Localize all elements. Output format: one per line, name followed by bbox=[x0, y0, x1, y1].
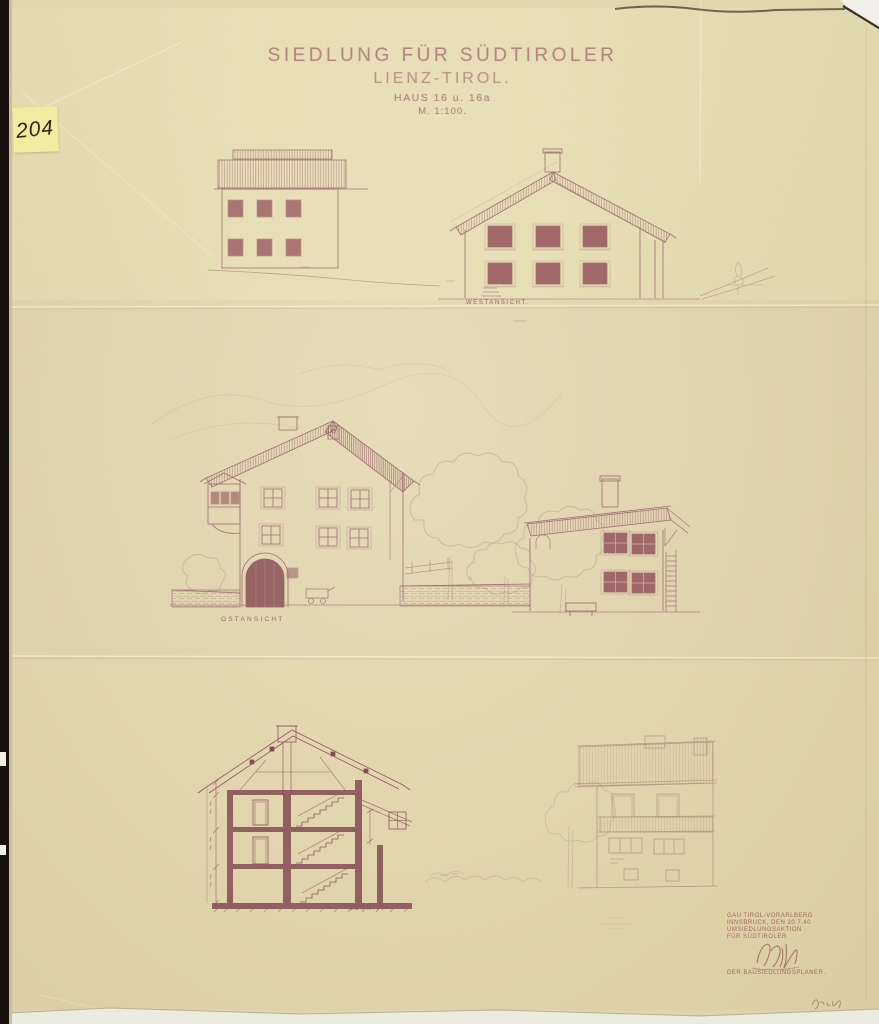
elevation-west bbox=[438, 149, 775, 321]
stamp-signer: DER BAUSIEDLUNGSPLANER. bbox=[727, 970, 826, 977]
title-line-4: M. 1:100. bbox=[255, 106, 630, 117]
stamp-line-2: INNSBRUCK, DEN 20.7.40 bbox=[727, 920, 826, 927]
office-stamp-block: GAU TIROL-VORARLBERG INNSBRUCK, DEN 20.7… bbox=[727, 913, 826, 977]
title-block: SIEDLUNG FÜR SÜDTIROLER LIENZ-TIROL. HAU… bbox=[255, 45, 630, 117]
elevation-balcony bbox=[575, 736, 718, 888]
scanned-architectural-drawing: 204 SIEDLUNG FÜR SÜDTIROLER LIENZ-TIROL.… bbox=[0, 0, 879, 1024]
pencil-mountain-sketch bbox=[150, 363, 562, 440]
elevation-east-secondary bbox=[512, 476, 700, 616]
stamp-line-1: GAU TIROL-VORARLBERG bbox=[727, 913, 826, 920]
scan-left-edge bbox=[0, 0, 9, 1024]
elevation-east-main bbox=[170, 417, 530, 607]
archive-sticky-note: 204 bbox=[12, 106, 59, 153]
scan-edge-notch bbox=[0, 752, 6, 766]
scan-left-gap bbox=[9, 0, 12, 1024]
elevation-small-north bbox=[208, 150, 440, 286]
scan-edge-notch bbox=[0, 845, 6, 855]
paper-creases bbox=[0, 0, 879, 1014]
stamp-line-3: UMSIEDLUNGSAKTION bbox=[727, 927, 826, 934]
ladder bbox=[666, 550, 676, 612]
building-section bbox=[198, 726, 458, 912]
tree-sketches-bottom bbox=[425, 782, 630, 929]
label-ostansicht: OSTANSICHT bbox=[221, 616, 284, 623]
drawing-linework bbox=[0, 0, 879, 1024]
stamp-line-4: FÜR SÜDTIROLER bbox=[727, 934, 826, 941]
title-line-3: HAUS 16 u. 16a bbox=[255, 92, 630, 104]
corner-handwriting bbox=[812, 1000, 840, 1009]
archive-number: 204 bbox=[15, 116, 55, 144]
title-line-2: LIENZ-TIROL. bbox=[255, 70, 630, 88]
scan-edge-artifacts bbox=[9, 0, 879, 1024]
title-line-1: SIEDLUNG FÜR SÜDTIROLER bbox=[255, 45, 630, 67]
label-westansicht: WESTANSICHT. bbox=[466, 300, 529, 306]
label-schnitt: SCHNITT bbox=[349, 906, 386, 912]
